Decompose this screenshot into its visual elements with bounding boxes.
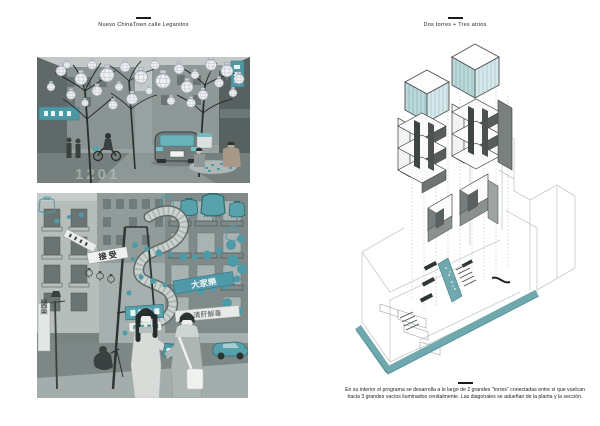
atrium-volume-right [460, 174, 498, 226]
right-title-rule [448, 17, 463, 19]
right-panel-title: Dos torres + Tres atrios [345, 22, 565, 29]
vertical-sign-text: 醫藥 [39, 299, 48, 316]
tower-left [398, 113, 446, 193]
atrium-volume-left [428, 194, 452, 242]
caption-block: En su interior el programa se desarrolla… [333, 382, 597, 401]
left-panel-title: Nuevo ChinaTown calle Leganitos [37, 22, 250, 29]
hatched-stairs [400, 264, 476, 330]
axonometric-diagram [352, 38, 578, 390]
tower-right [452, 99, 512, 170]
photo-chinatown-lantern-street: 1201 [37, 57, 250, 183]
caption-line-1: En su interior el programa se desarrolla… [333, 387, 597, 394]
right-panel-title-block: Dos torres + Tres atrios [345, 17, 565, 28]
teal-street-band [358, 293, 537, 370]
roof-cube-left [405, 70, 449, 122]
left-panel-title-block: Nuevo ChinaTown calle Leganitos [37, 17, 250, 28]
photo-leganitos-serpent-collage: 接 受 大家樂 清肝解毒 醫藥 [37, 193, 248, 398]
teal-stair-band [438, 258, 462, 302]
shop-sign-teal-left [39, 107, 79, 120]
ghost-numbers-text: 1201 [75, 166, 120, 183]
left-title-rule [136, 17, 151, 19]
roof-cube-right [452, 44, 499, 98]
vertical-sign: 醫藥 [38, 299, 50, 351]
caption-rule [458, 382, 473, 384]
bent-duct-line [492, 278, 510, 283]
portfolio-page: Nuevo ChinaTown calle Leganitos Dos torr… [0, 0, 600, 426]
caption-line-2: hacia 3 grandes vacíos iluminados cenita… [333, 394, 597, 401]
